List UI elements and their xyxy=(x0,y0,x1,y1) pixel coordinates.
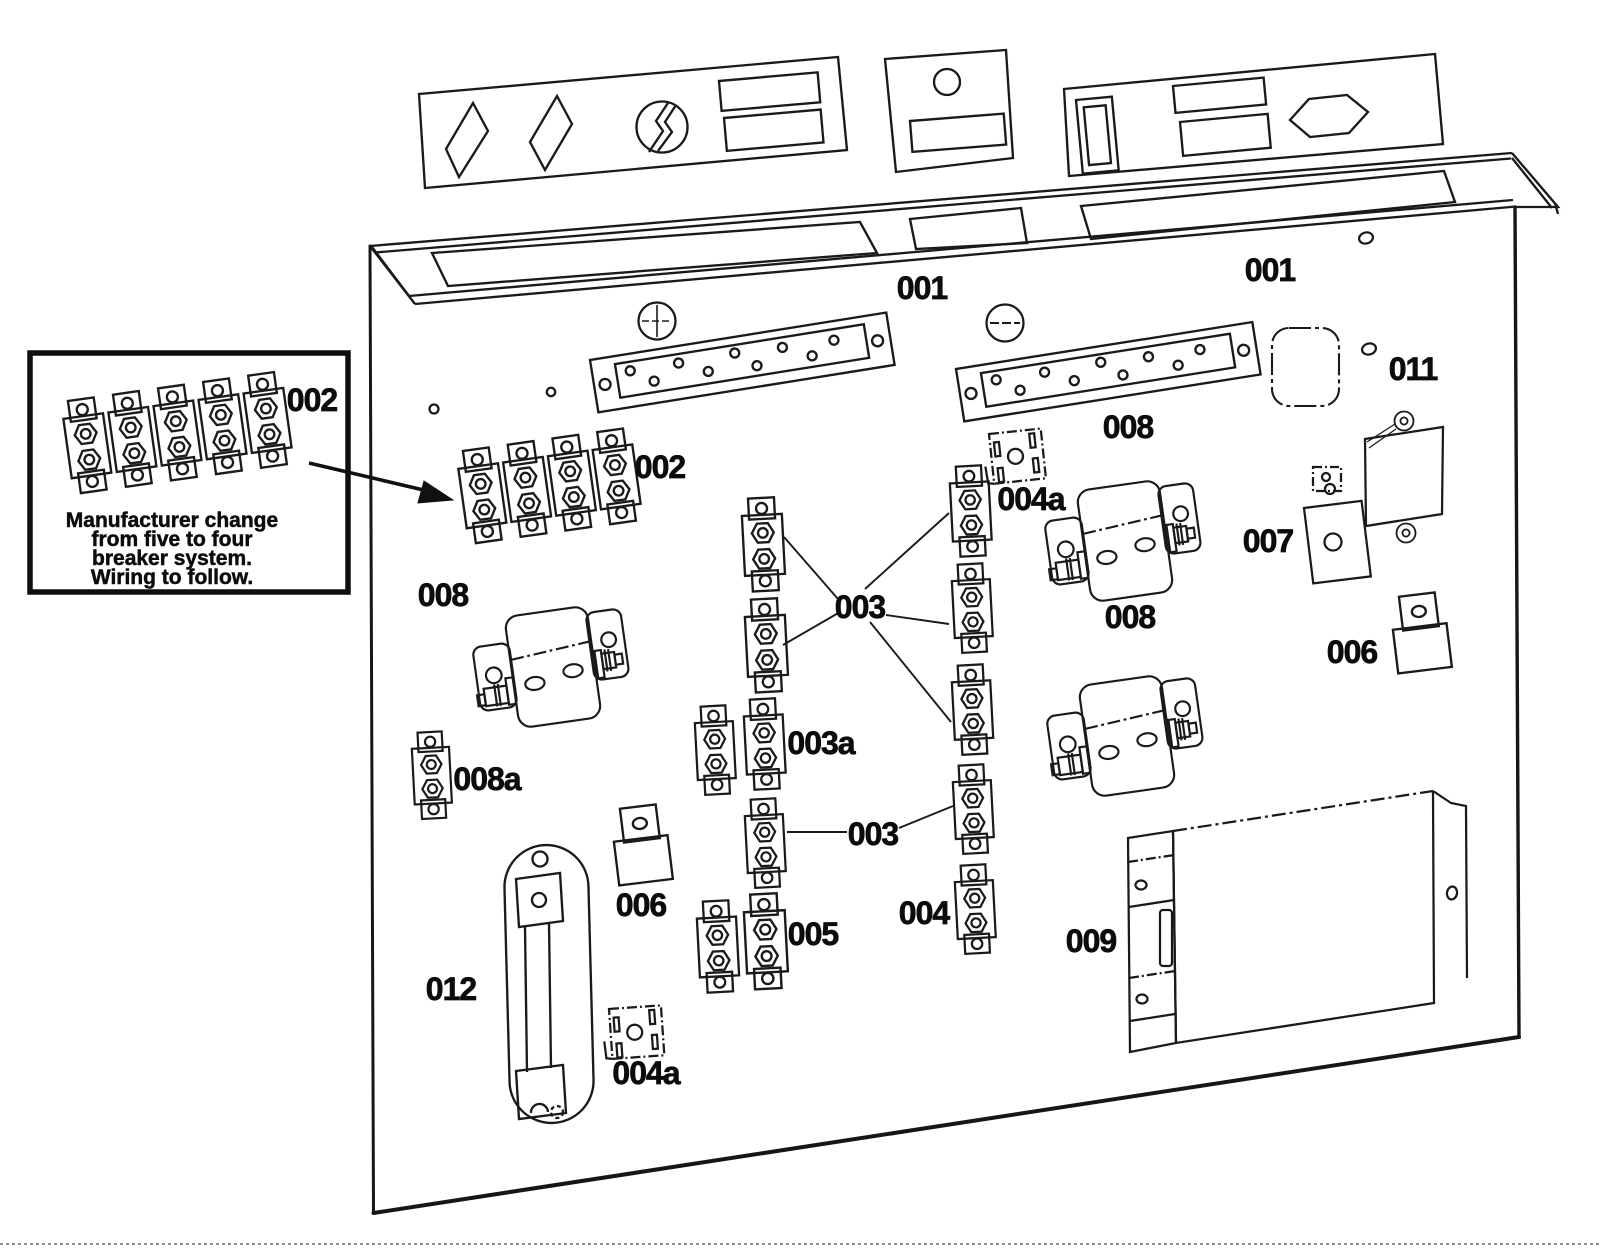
svg-text:008a: 008a xyxy=(453,761,521,797)
svg-text:004: 004 xyxy=(899,895,951,931)
svg-text:Wiring to follow.: Wiring to follow. xyxy=(91,566,253,589)
svg-text:007: 007 xyxy=(1243,523,1294,559)
svg-text:012: 012 xyxy=(426,971,477,1007)
svg-text:002: 002 xyxy=(287,382,338,418)
svg-text:001: 001 xyxy=(897,270,948,306)
svg-text:008: 008 xyxy=(1105,599,1156,635)
svg-text:004a: 004a xyxy=(612,1055,680,1091)
svg-text:011: 011 xyxy=(1389,351,1438,387)
svg-text:003: 003 xyxy=(848,816,899,852)
svg-text:005: 005 xyxy=(788,916,839,952)
svg-text:003a: 003a xyxy=(787,725,855,761)
svg-text:008: 008 xyxy=(418,577,469,613)
svg-text:002: 002 xyxy=(635,449,686,485)
svg-text:006: 006 xyxy=(616,887,667,923)
svg-text:004a: 004a xyxy=(997,481,1065,517)
svg-text:008: 008 xyxy=(1103,409,1154,445)
svg-text:006: 006 xyxy=(1327,634,1378,670)
svg-text:001: 001 xyxy=(1245,252,1296,288)
svg-text:009: 009 xyxy=(1066,923,1117,959)
svg-text:003: 003 xyxy=(835,589,886,625)
